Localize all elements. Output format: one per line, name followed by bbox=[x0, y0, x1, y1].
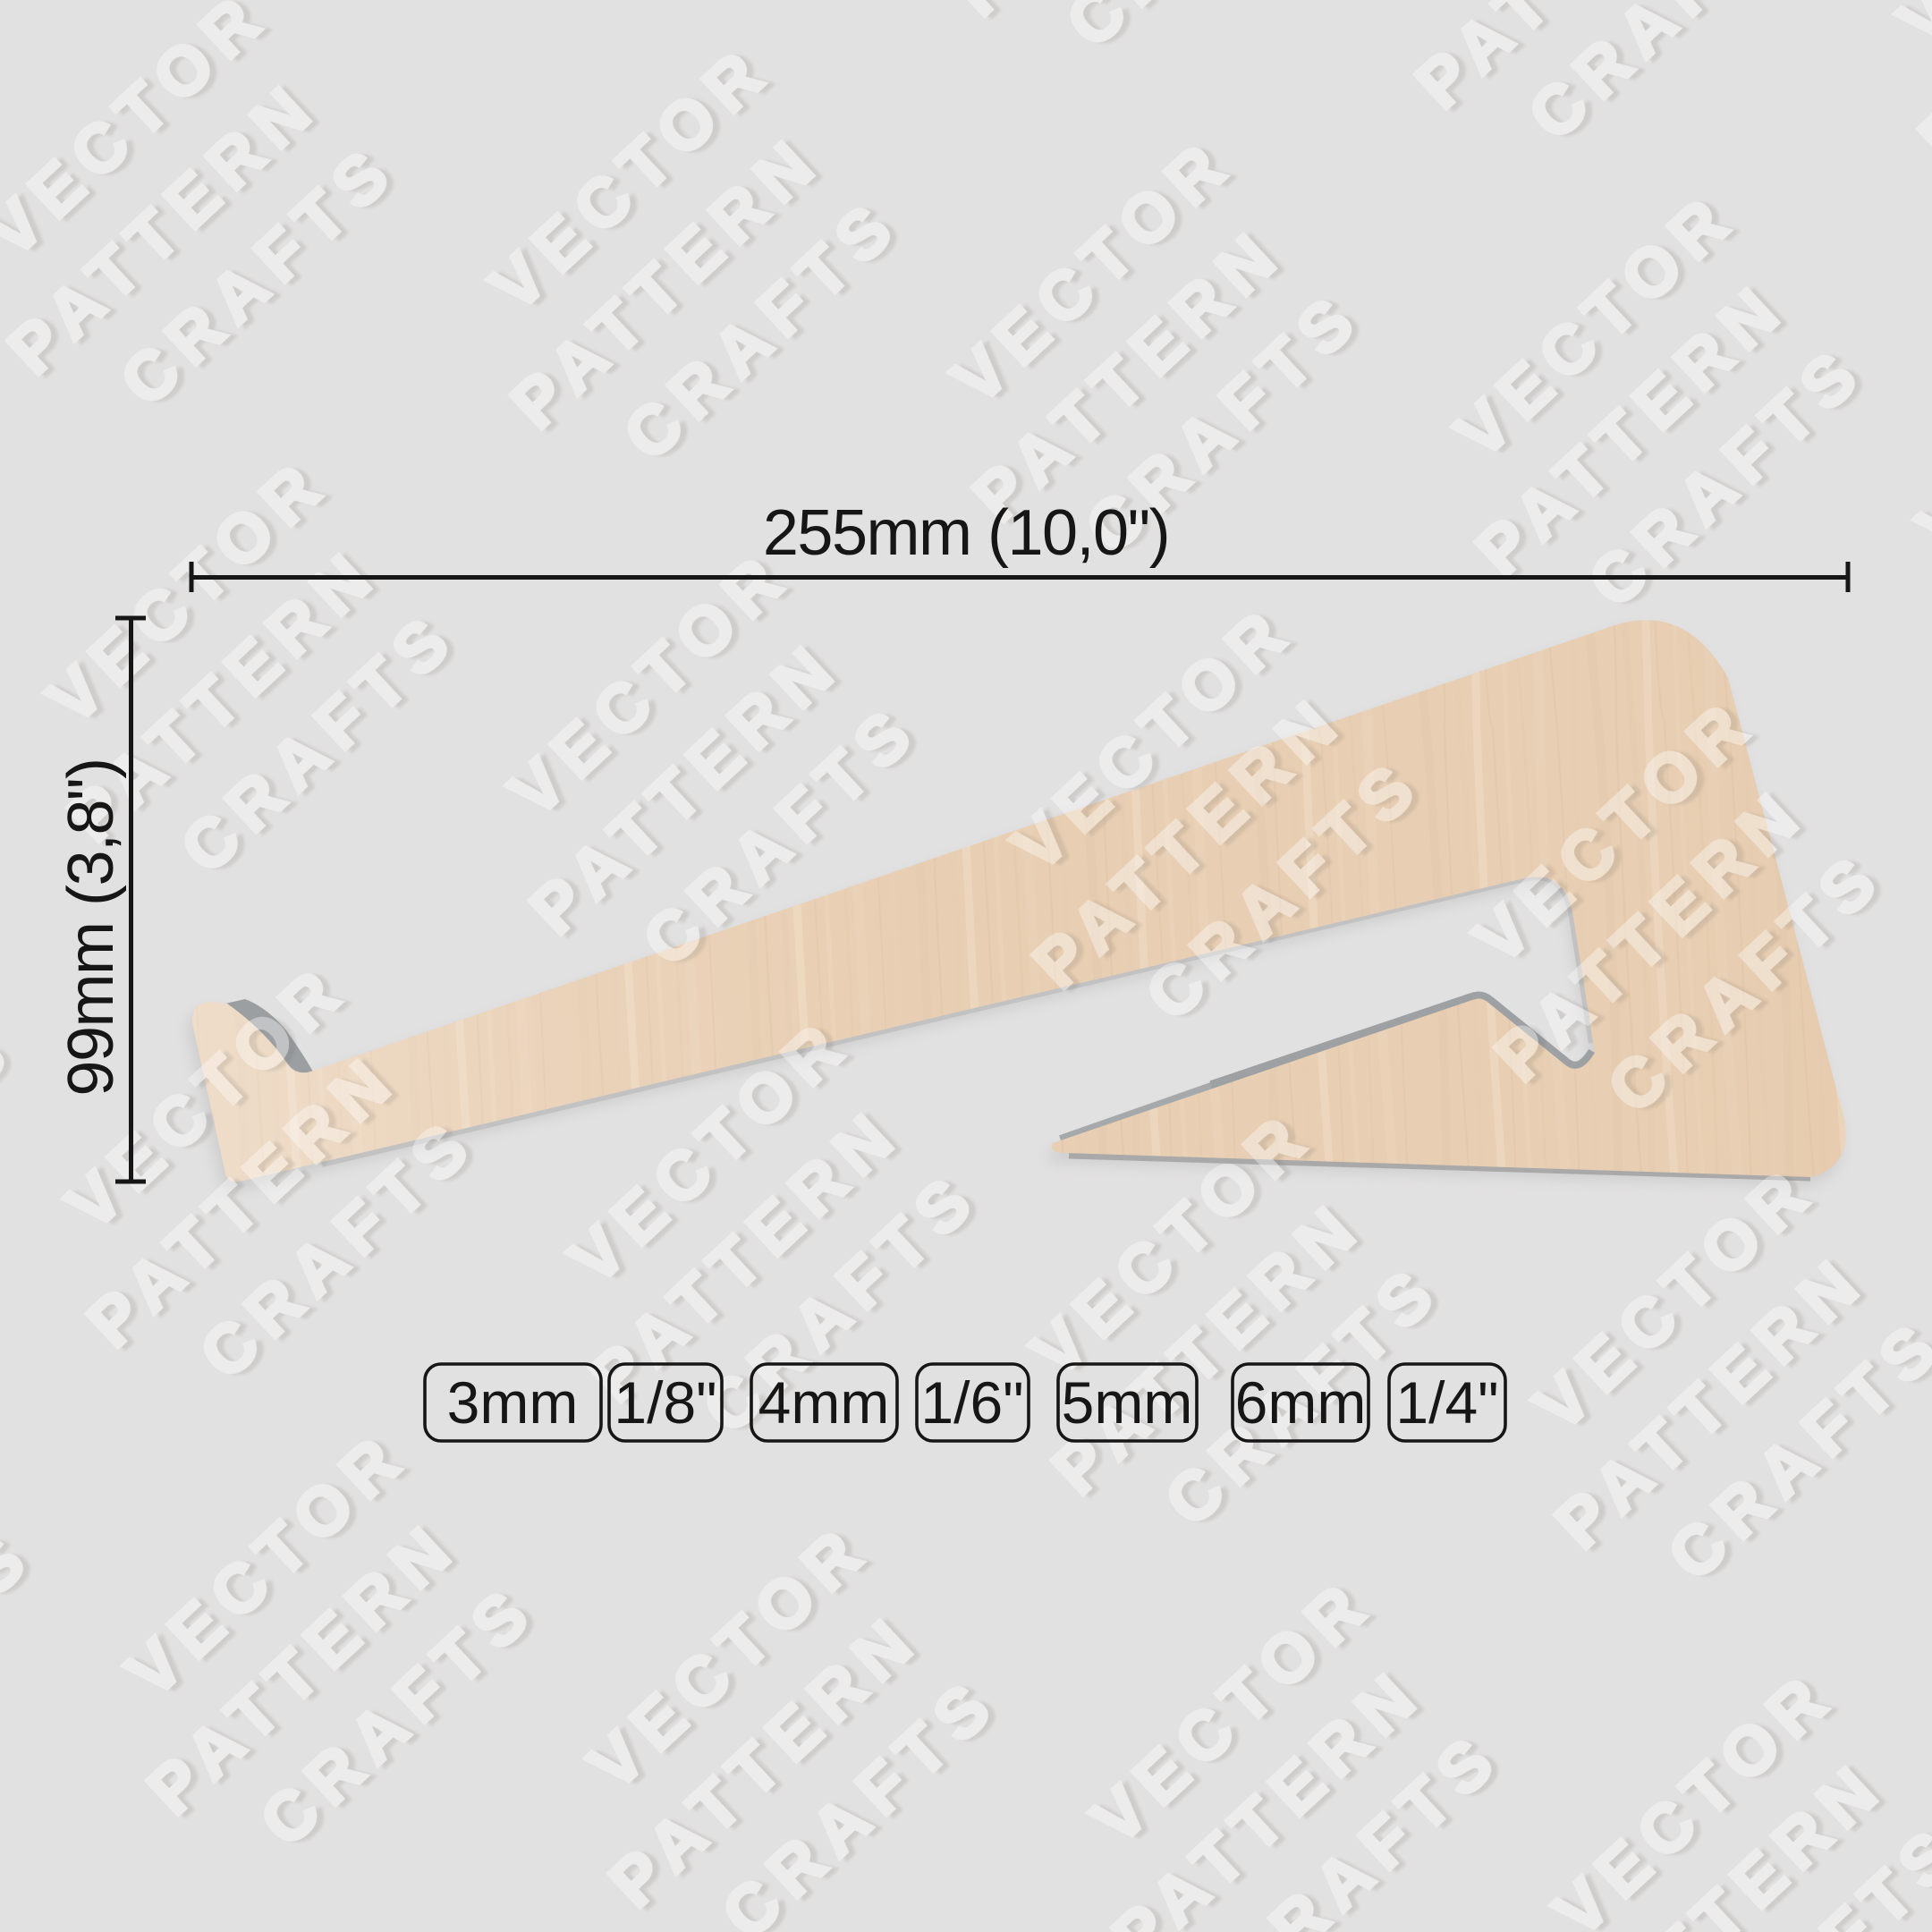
svg-text:1/8": 1/8" bbox=[614, 1369, 716, 1436]
svg-text:5mm: 5mm bbox=[1062, 1369, 1193, 1436]
svg-text:6mm: 6mm bbox=[1235, 1369, 1367, 1436]
svg-text:255mm (10,0"): 255mm (10,0") bbox=[763, 497, 1169, 569]
svg-text:3mm: 3mm bbox=[447, 1369, 579, 1436]
svg-text:4mm: 4mm bbox=[758, 1369, 890, 1436]
svg-text:1/6": 1/6" bbox=[920, 1369, 1023, 1436]
svg-text:99mm (3,8"): 99mm (3,8") bbox=[55, 758, 127, 1096]
svg-text:1/4": 1/4" bbox=[1395, 1369, 1498, 1436]
